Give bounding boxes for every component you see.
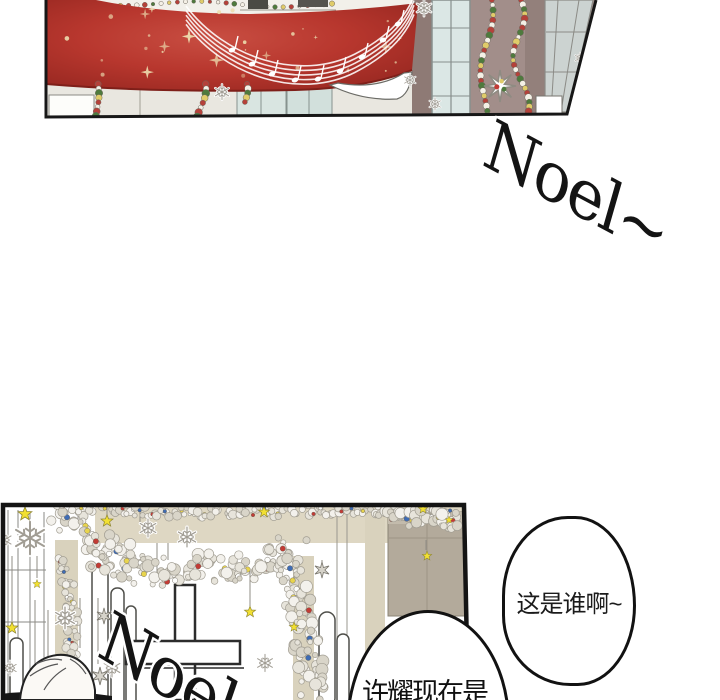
mall-wall <box>412 0 600 122</box>
comic-page: Noel~ <box>0 0 720 700</box>
sfx-text-noel-top: Noel~ <box>477 110 675 270</box>
comic-panel-top <box>0 0 720 130</box>
speech-text: 这是谁啊~ <box>516 584 621 619</box>
speech-text: 许耀现在是 <box>362 671 487 700</box>
speech-bubble-who: 这是谁啊~ <box>502 516 636 686</box>
